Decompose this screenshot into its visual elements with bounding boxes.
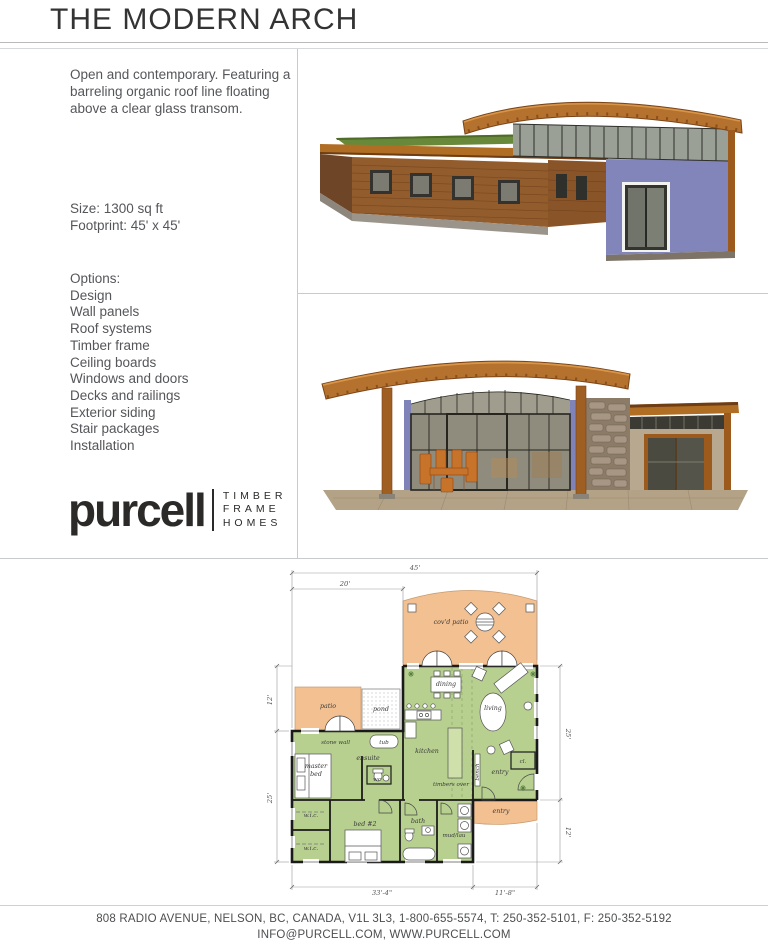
description-text: Open and contemporary. Featuring a barre…: [70, 66, 308, 117]
dim-bottom-left: 33'-4": [372, 889, 392, 897]
dim-right-upper: 25': [564, 728, 572, 740]
room-label-wic1: w.i.c.: [304, 813, 319, 819]
room-label-entry-int: entry: [492, 769, 509, 776]
room-label-wc: wc: [373, 777, 382, 783]
footer-address-line: 808 RADIO AVENUE, NELSON, BC, CANADA, V1…: [0, 911, 768, 927]
room-label-tub: tub: [379, 740, 389, 746]
covered-patio-area: [403, 591, 537, 667]
room-label-kitchen: kitchen: [415, 748, 439, 755]
room-label-wic2: w.i.c.: [304, 846, 319, 852]
option-item: Wall panels: [70, 304, 189, 321]
room-label-bath: bath: [411, 818, 425, 825]
logo-tagline-line: TIMBER: [223, 490, 287, 504]
laundry-icon: [458, 804, 471, 858]
french-door-icon: [644, 434, 712, 490]
dim-left-width: 20': [339, 580, 351, 588]
bed2-icon: [345, 830, 381, 862]
logo-tagline-line: HOMES: [223, 517, 287, 531]
title-rule-top: [0, 42, 768, 43]
brochure-page: THE MODERN ARCH Open and contemporary. F…: [0, 0, 768, 949]
purcell-logo: purcell TIMBER FRAME HOMES: [68, 487, 287, 533]
room-label-covd-patio: cov'd patio: [434, 619, 469, 626]
option-item: Design: [70, 288, 189, 305]
option-item: Windows and doors: [70, 371, 189, 388]
dim-left-upper: 12': [266, 695, 274, 706]
option-item: Exterior siding: [70, 405, 189, 422]
option-item: Roof systems: [70, 321, 189, 338]
logo-tagline-line: FRAME: [223, 503, 287, 517]
options-list: Options: Design Wall panels Roof systems…: [70, 271, 189, 455]
room-label-ensuite: ensuite: [356, 755, 380, 762]
size-line: Size: 1300 sq ft: [70, 200, 180, 217]
option-item: Ceiling boards: [70, 355, 189, 372]
room-label-closet: cl.: [520, 759, 527, 765]
room-label-dining: dining: [436, 681, 456, 688]
column-divider: [297, 49, 298, 558]
dim-bottom-right: 11'-8": [495, 889, 515, 897]
size-block: Size: 1300 sq ft Footprint: 45' x 45': [70, 200, 180, 234]
great-room-area: [403, 666, 537, 800]
option-item: Decks and railings: [70, 388, 189, 405]
dim-right-lower: 12': [564, 827, 572, 838]
patio-elevation-image: [308, 332, 763, 547]
options-heading: Options:: [70, 271, 189, 288]
room-label-bench: bench: [475, 763, 481, 781]
title-rule-bottom: [0, 48, 768, 49]
option-item: Timber frame: [70, 338, 189, 355]
dim-left-lower: 25': [266, 793, 274, 805]
room-label-entry-porch: entry: [493, 808, 510, 815]
exterior-perspective-image: [308, 64, 763, 289]
room-label-bed2: bed #2: [353, 821, 376, 828]
page-title: THE MODERN ARCH: [50, 3, 358, 37]
footer-contact-line: INFO@PURCELL.COM, WWW.PURCELL.COM: [0, 927, 768, 943]
option-item: Installation: [70, 438, 189, 455]
logo-divider: [212, 489, 214, 531]
bedroom-wing-area: [292, 800, 473, 862]
rendering-divider: [297, 293, 768, 294]
dim-overall-width: 45': [409, 564, 421, 572]
plan-section-divider: [0, 558, 768, 559]
glass-door-icon: [622, 182, 670, 252]
footer-divider: [0, 905, 768, 906]
room-label-master-2: bed: [310, 771, 322, 778]
option-item: Stair packages: [70, 421, 189, 438]
room-label-master-1: master: [305, 763, 328, 770]
footer: 808 RADIO AVENUE, NELSON, BC, CANADA, V1…: [0, 911, 768, 943]
room-label-patio: patio: [320, 703, 336, 710]
floor-plan: 45' 20' 12' 25' 25' 12' 33'-4" 11'-8" co…: [255, 560, 600, 905]
room-label-mud-lau: mud/lau: [442, 833, 465, 839]
room-label-pond: pond: [373, 706, 389, 713]
footprint-line: Footprint: 45' x 45': [70, 217, 180, 234]
room-label-living: living: [484, 705, 502, 712]
logo-tagline: TIMBER FRAME HOMES: [223, 490, 287, 531]
room-label-stone-wall: stone wall: [321, 740, 350, 746]
room-label-timbers-over: timbers over: [433, 782, 469, 788]
logo-wordmark: purcell: [68, 487, 205, 533]
